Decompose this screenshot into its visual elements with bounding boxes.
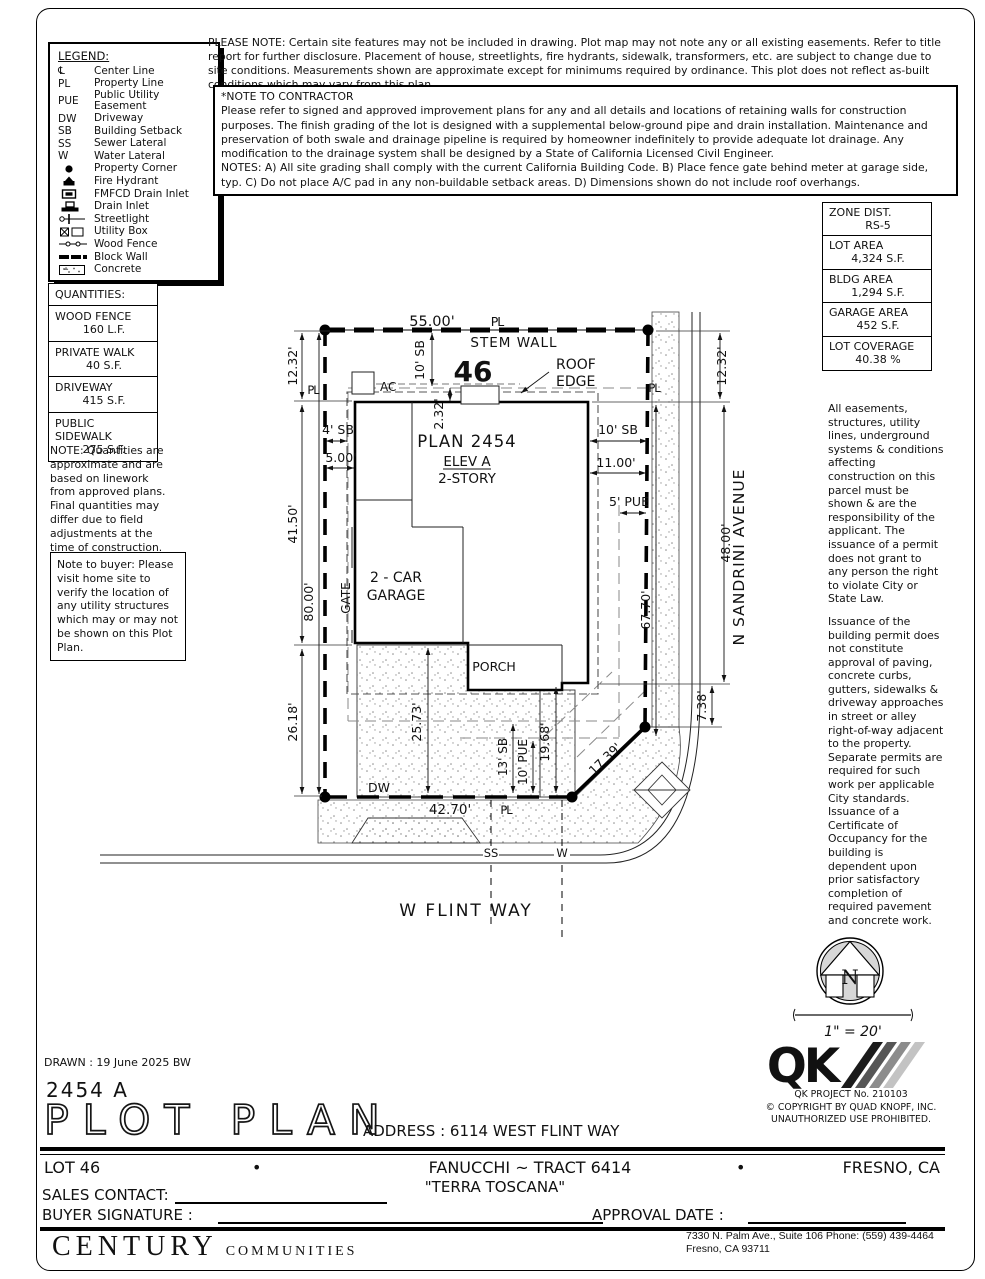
dim-right-1232: 12.32' [714,346,729,385]
fire-hydrant-icon [58,175,94,187]
sales-contact-blank [175,1202,387,1204]
legend-row: ℄Center Line [58,65,214,78]
sales-contact-label: SALES CONTACT: [42,1186,169,1204]
dim-sb4: 4' SB [322,422,354,437]
contractor-notes: NOTES: A) All site grading shall comply … [221,161,950,190]
dim-2573: 25.73' [409,702,424,741]
legend-row: DWDriveway [58,112,214,125]
garage-label-1: 2 - CAR [370,570,422,586]
wood-fence-icon [58,238,94,250]
dim-232: 2.32' [431,398,446,429]
table-row: LOT COVERAGE40.38 % [822,336,932,371]
legend-row: Concrete [58,263,214,276]
water-symbol: W [58,150,94,162]
bullet-icon: • [736,1158,745,1177]
ac-label: AC [380,380,396,394]
footer-tract: FANUCCHI ~ TRACT 6414 [360,1158,700,1177]
divider-thick [40,1147,945,1151]
dim-pue5: 5' PUE [609,494,649,509]
please-note-text: PLEASE NOTE: Certain site features may n… [208,36,946,92]
dim-top: 55.00' [409,314,455,330]
dim-left-1232: 12.32' [285,346,300,385]
dim-sb10-top: 10' SB [412,340,427,380]
note-to-contractor-box: *NOTE TO CONTRACTOR Please refer to sign… [213,85,958,196]
community-name: "TERRA TOSCANA" [360,1178,630,1196]
easement-paragraph-2: Issuance of the building permit does not… [828,615,944,928]
table-row: GARAGE AREA452 S.F. [822,302,932,337]
table-row: BLDG AREA1,294 S.F. [822,269,932,304]
qk-prohibited: UNAUTHORIZED USE PROHIBITED. [755,1114,947,1126]
pl-label-left: PL [307,383,320,397]
contractor-body: Please refer to signed and approved impr… [221,104,950,161]
street-name-bottom: W FLINT WAY [399,901,533,921]
ac-pad [352,372,374,394]
dim-6770: 67.70' [638,590,653,629]
dim-4800: 48.00' [718,523,733,562]
driveway-symbol: DW [58,113,94,125]
elev-label: ELEV A [443,454,491,470]
legend-row: Property Corner [58,163,214,176]
pue-symbol: PUE [58,95,94,107]
legend-row: Wood Fence [58,238,214,251]
legend-row: SSSewer Lateral [58,137,214,150]
easement-disclaimer: All easements, structures, utility lines… [828,402,944,937]
footer-lot: LOT 46 [44,1158,100,1177]
roof-leader-line [521,372,549,393]
scale-bar: 1" = 20' [788,1008,918,1042]
builder-address: 7330 N. Palm Ave., Suite 106 Phone: (559… [686,1230,934,1256]
zone-table: ZONE DIST.RS-5 LOT AREA4,324 S.F. BLDG A… [822,202,932,371]
dim-pue10: 10' PUE [516,739,530,785]
page-title: PLOT PLAN [44,1096,394,1144]
address-line: ADDRESS : 6114 WEST FLINT WAY [363,1122,619,1140]
legend-row: SBBuilding Setback [58,125,214,138]
streetlight-icon [58,213,94,225]
dim-8000: 80.00' [301,582,316,621]
sewer-symbol: SS [58,138,94,150]
roof-edge-label-1: ROOF [556,357,596,373]
dim-4270: 42.70' [429,802,471,818]
stem-wall-label: STEM WALL [470,335,557,351]
builder-name-2: COMMUNITIES [226,1244,358,1259]
legend-row: PUEPublic Utility Easement [58,90,214,112]
garage-label-2: GARAGE [367,588,426,604]
property-corner-icon [58,163,94,175]
buyer-signature-blank [218,1222,603,1224]
legend-row: Streetlight [58,213,214,226]
buyer-signature-label: BUYER SIGNATURE : [42,1206,193,1224]
footer-city: FRESNO, CA [843,1158,940,1177]
driveway-apron [352,818,480,843]
roof-edge-label-2: EDGE [556,374,595,390]
plan-label: PLAN 2454 [417,432,516,451]
drain-inlet-icon [58,201,94,213]
north-arrow: N [793,932,908,1010]
table-row: LOT AREA4,324 S.F. [822,235,932,270]
qk-logo-stripes [839,1038,935,1088]
lot-number: 46 [454,355,493,388]
plot-plan-sheet: LEGEND: ℄Center Line PLProperty Line PUE… [0,0,985,1279]
concrete-icon [58,264,94,276]
pl-label-bottom: PL [500,803,513,817]
dim-500: 5.00' [325,450,356,465]
dw-label: DW [368,780,390,795]
dim-sb13: 13' SB [496,738,510,776]
builder-logo: CENTURYCOMMUNITIES [52,1231,357,1263]
qk-copyright: © COPYRIGHT BY QUAD KNOPF, INC. [755,1102,947,1114]
legend-row: WWater Lateral [58,150,214,163]
builder-name: CENTURY [52,1231,218,1262]
story-label: 2-STORY [438,471,496,487]
bullet-icon: • [252,1158,261,1177]
legend-row: Drain Inlet [58,200,214,213]
ss-label: SS [484,846,499,860]
center-line-symbol: ℄ [58,65,94,77]
site-plan-drawing: 55.00' PL STEM WALL 46 ROOF EDGE AC PL P… [90,295,770,945]
legend-row: Block Wall [58,251,214,264]
divider-thin [40,1154,945,1155]
legend-box: LEGEND: ℄Center Line PLProperty Line PUE… [48,42,220,282]
porch-label: PORCH [472,659,516,674]
legend-row: FMFCD Drain Inlet [58,188,214,201]
gate-label: GATE [339,582,353,614]
approval-date-label: APPROVAL DATE : [592,1206,724,1224]
dim-1100: 11.00' [596,455,635,470]
easement-paragraph-1: All easements, structures, utility lines… [828,402,944,606]
dim-sb10-right: 10' SB [598,422,638,437]
dim-1968: 19.68' [537,722,552,761]
dim-738: 7.38' [694,690,709,721]
w-label: W [556,846,567,860]
table-row: ZONE DIST.RS-5 [822,202,932,237]
fmfcd-drain-inlet-icon [58,188,94,200]
pl-label-right: PL [648,381,661,395]
utility-box-icon [58,226,94,238]
legend-row: Utility Box [58,226,214,239]
setback-symbol: SB [58,125,94,137]
pl-label-top: PL [491,314,505,329]
bay-window [461,386,499,404]
qk-logo: QK QK PROJECT No. 210103 © COPYRIGHT BY … [755,1038,947,1126]
contractor-title: *NOTE TO CONTRACTOR [221,90,950,104]
approval-date-blank [748,1222,906,1224]
dim-4150: 41.50' [285,504,300,543]
property-line-symbol: PL [58,78,94,90]
drawn-date: DRAWN : 19 June 2025 BW [44,1056,191,1069]
legend-row: Fire Hydrant [58,175,214,188]
block-wall-icon [58,251,94,263]
qk-logo-text: QK [767,1046,837,1088]
dim-2618: 26.18' [285,702,300,741]
legend-title: LEGEND: [58,49,214,63]
north-letter: N [841,965,859,989]
footer-row: LOT 46 • FANUCCHI ~ TRACT 6414 • FRESNO,… [40,1158,945,1178]
